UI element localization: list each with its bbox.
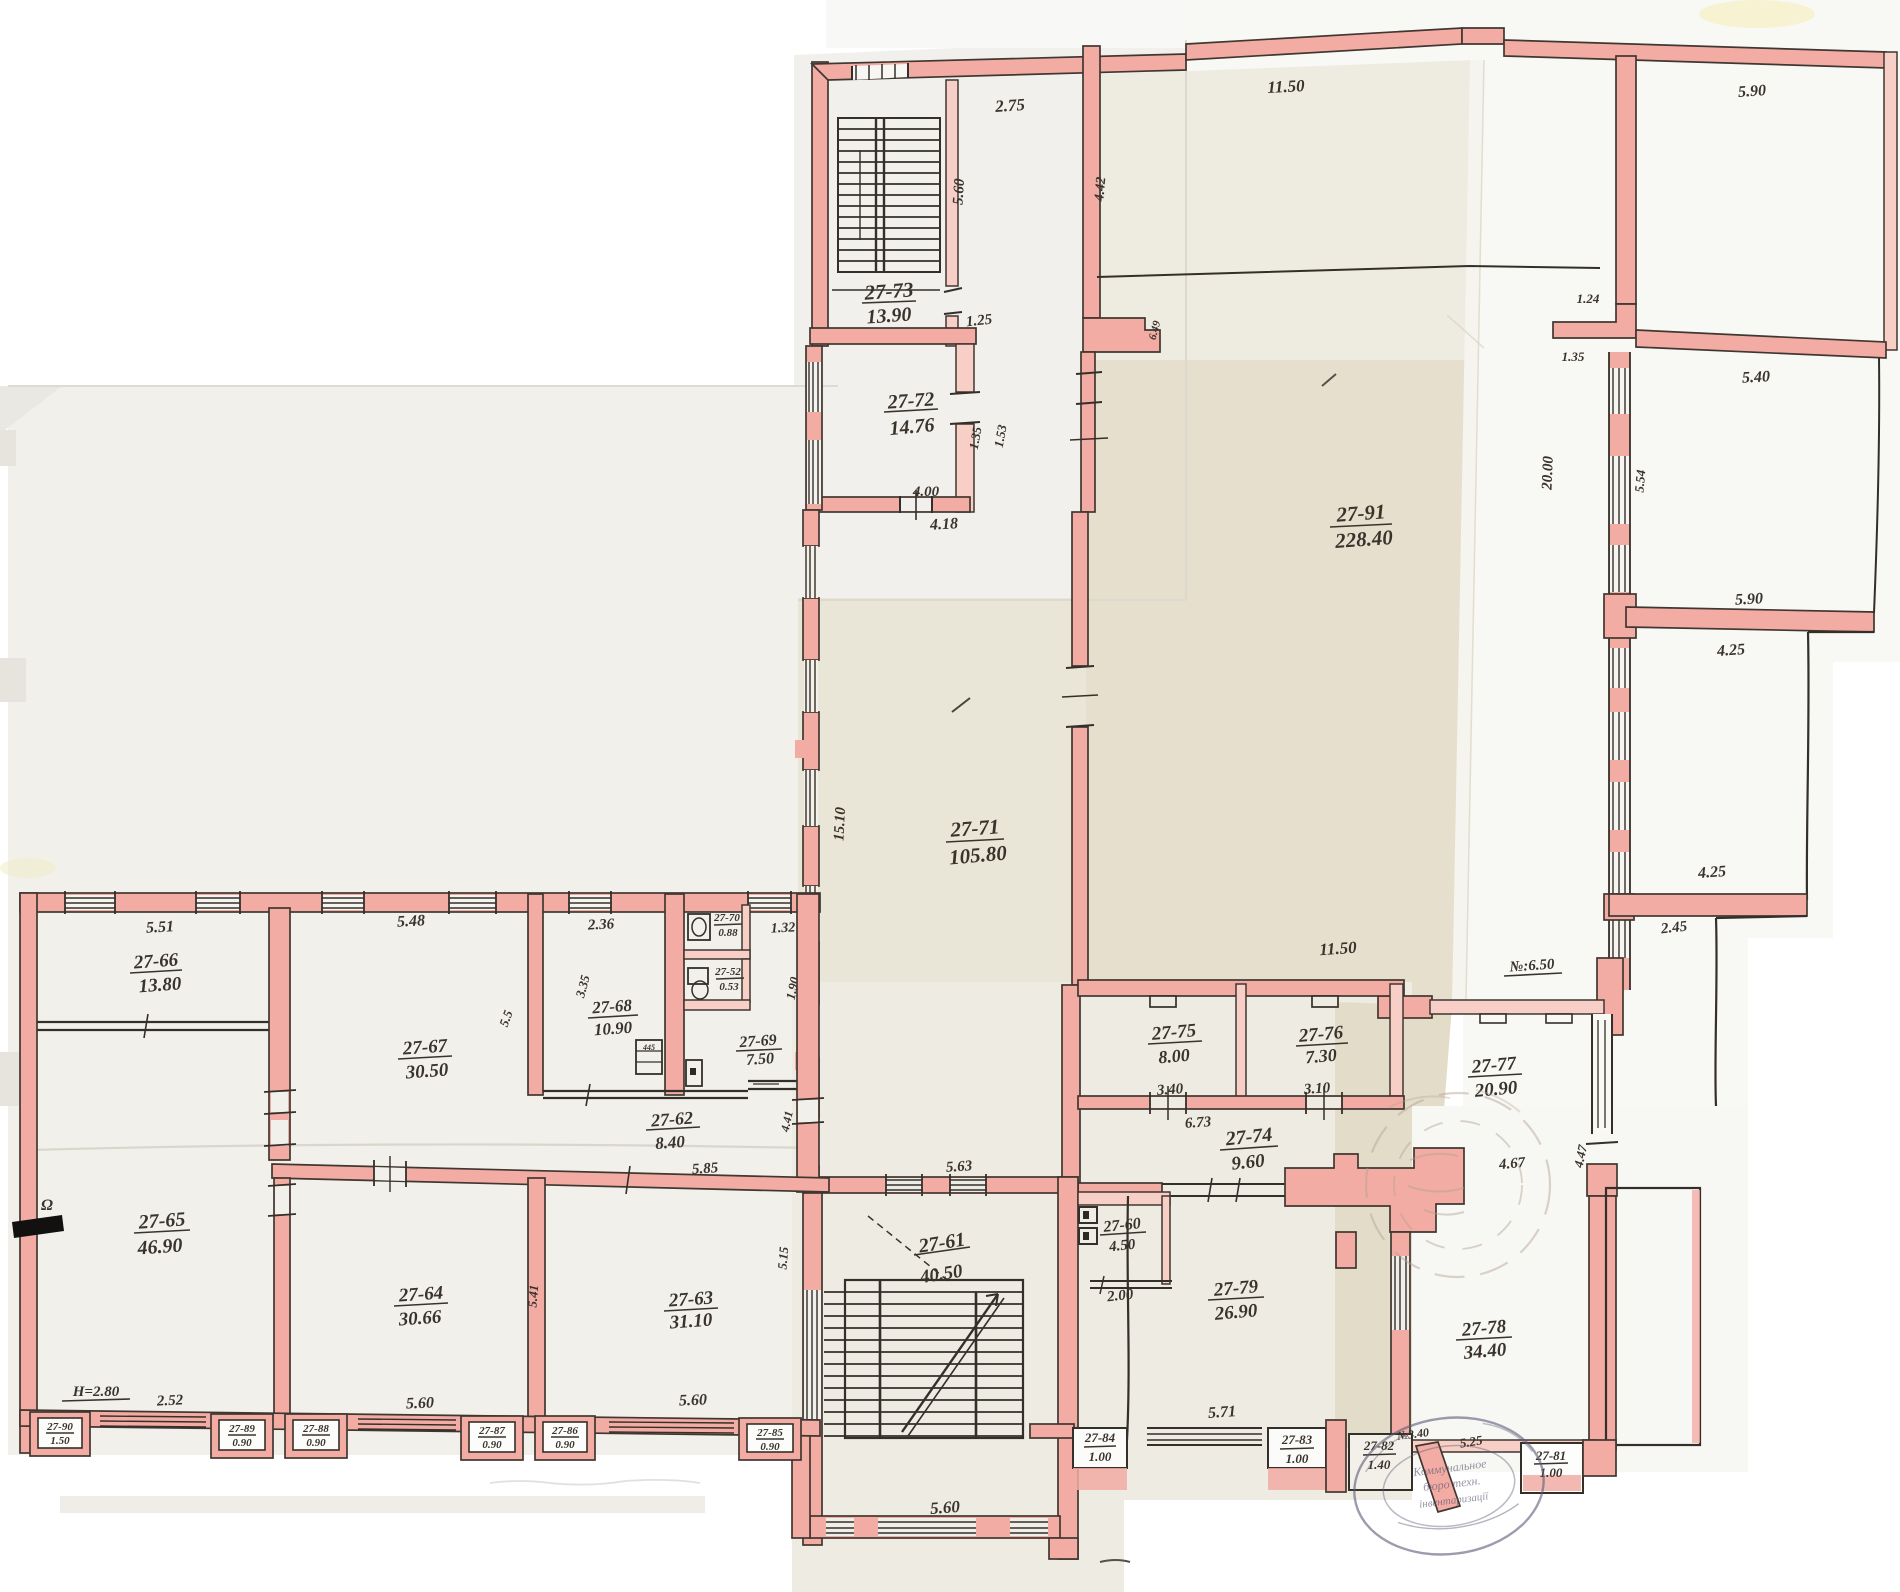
svg-text:11.50: 11.50 [1267, 76, 1306, 97]
svg-text:4.18: 4.18 [929, 515, 959, 533]
svg-text:0.90: 0.90 [232, 1437, 252, 1449]
svg-text:1.00: 1.00 [1286, 1451, 1309, 1466]
svg-text:27-69: 27-69 [738, 1032, 777, 1052]
svg-text:27-71: 27-71 [949, 814, 1001, 841]
svg-text:5.71: 5.71 [1207, 1403, 1236, 1422]
svg-text:6.73: 6.73 [1184, 1114, 1212, 1132]
svg-text:15.10: 15.10 [831, 806, 849, 841]
svg-text:H=2.80: H=2.80 [72, 1384, 120, 1400]
svg-text:7.50: 7.50 [746, 1050, 775, 1069]
svg-text:27-68: 27-68 [591, 996, 633, 1018]
svg-text:4.50: 4.50 [1107, 1237, 1136, 1256]
svg-text:27-83: 27-83 [1281, 1432, 1313, 1447]
svg-text:5.54: 5.54 [1631, 469, 1648, 493]
svg-text:8.40: 8.40 [655, 1132, 687, 1153]
svg-text:27-89: 27-89 [228, 1423, 255, 1435]
svg-text:46.90: 46.90 [136, 1234, 183, 1259]
svg-text:5.63: 5.63 [945, 1158, 973, 1176]
svg-text:0.90: 0.90 [760, 1441, 780, 1453]
svg-text:0.90: 0.90 [555, 1439, 575, 1451]
svg-text:4.25: 4.25 [1715, 641, 1745, 660]
svg-text:Ω: Ω [41, 1197, 53, 1214]
svg-text:27-85: 27-85 [756, 1427, 783, 1439]
svg-text:14.76: 14.76 [889, 414, 936, 440]
svg-text:8.00: 8.00 [1157, 1045, 1190, 1068]
svg-text:1.00: 1.00 [1089, 1449, 1112, 1464]
svg-text:27-88: 27-88 [302, 1423, 329, 1435]
svg-text:5.48: 5.48 [397, 912, 426, 930]
svg-text:26.90: 26.90 [1213, 1300, 1259, 1325]
svg-text:31.10: 31.10 [668, 1309, 714, 1333]
svg-text:27-91: 27-91 [1335, 499, 1387, 526]
svg-text:4.42: 4.42 [1092, 176, 1109, 203]
svg-text:2.75: 2.75 [994, 95, 1026, 116]
svg-text:3.10: 3.10 [1302, 1080, 1331, 1098]
svg-text:5.40: 5.40 [1742, 368, 1771, 386]
svg-text:0.88: 0.88 [718, 927, 738, 939]
svg-text:20.00: 20.00 [1540, 455, 1557, 491]
svg-text:27-52: 27-52 [714, 966, 741, 978]
svg-text:10.90: 10.90 [593, 1018, 633, 1040]
svg-text:13.80: 13.80 [138, 973, 183, 997]
svg-text:0.90: 0.90 [482, 1439, 502, 1451]
svg-text:13.90: 13.90 [866, 303, 912, 328]
svg-text:№:6.50: №:6.50 [1508, 956, 1555, 975]
svg-text:2.36: 2.36 [587, 916, 616, 933]
svg-text:3.40: 3.40 [1155, 1081, 1184, 1099]
svg-text:30.50: 30.50 [404, 1059, 450, 1083]
svg-text:30.66: 30.66 [397, 1306, 443, 1330]
svg-text:2.52: 2.52 [156, 1392, 185, 1409]
svg-text:1.24: 1.24 [1577, 291, 1600, 306]
svg-text:11.50: 11.50 [1319, 938, 1358, 960]
svg-text:5.60: 5.60 [679, 1392, 708, 1410]
svg-text:5.90: 5.90 [1735, 590, 1764, 608]
svg-text:228.40: 228.40 [1333, 525, 1394, 553]
svg-text:27-70: 27-70 [713, 912, 740, 924]
svg-text:5.60: 5.60 [406, 1395, 435, 1413]
svg-text:105.80: 105.80 [948, 840, 1008, 869]
svg-text:27-90: 27-90 [46, 1421, 73, 1433]
svg-text:4.25: 4.25 [1696, 863, 1726, 882]
svg-text:27-86: 27-86 [551, 1425, 578, 1437]
svg-text:5.15: 5.15 [774, 1246, 791, 1270]
svg-text:9.60: 9.60 [1230, 1150, 1266, 1174]
svg-text:5.51: 5.51 [146, 918, 175, 936]
svg-text:0.53: 0.53 [719, 981, 739, 993]
svg-text:34.40: 34.40 [1462, 1339, 1508, 1364]
svg-text:1.25: 1.25 [965, 312, 993, 331]
svg-text:4.00: 4.00 [912, 484, 940, 500]
svg-text:4.67: 4.67 [1497, 1155, 1526, 1173]
svg-text:5.60: 5.60 [929, 1497, 961, 1518]
svg-text:5.90: 5.90 [1737, 82, 1766, 101]
svg-text:20.90: 20.90 [1473, 1077, 1519, 1102]
svg-text:5.41: 5.41 [524, 1284, 541, 1308]
svg-text:27-84: 27-84 [1084, 1430, 1116, 1445]
svg-text:0.90: 0.90 [306, 1437, 326, 1449]
svg-text:1.35: 1.35 [1562, 349, 1585, 364]
svg-text:2.00: 2.00 [1105, 1287, 1134, 1306]
svg-text:1.50: 1.50 [50, 1435, 70, 1447]
svg-text:445: 445 [642, 1043, 655, 1052]
svg-text:7.30: 7.30 [1304, 1045, 1337, 1068]
svg-text:5.60: 5.60 [950, 178, 968, 206]
svg-text:1.32: 1.32 [770, 920, 795, 936]
svg-text:2.45: 2.45 [1659, 919, 1688, 938]
svg-text:27-87: 27-87 [478, 1425, 505, 1437]
